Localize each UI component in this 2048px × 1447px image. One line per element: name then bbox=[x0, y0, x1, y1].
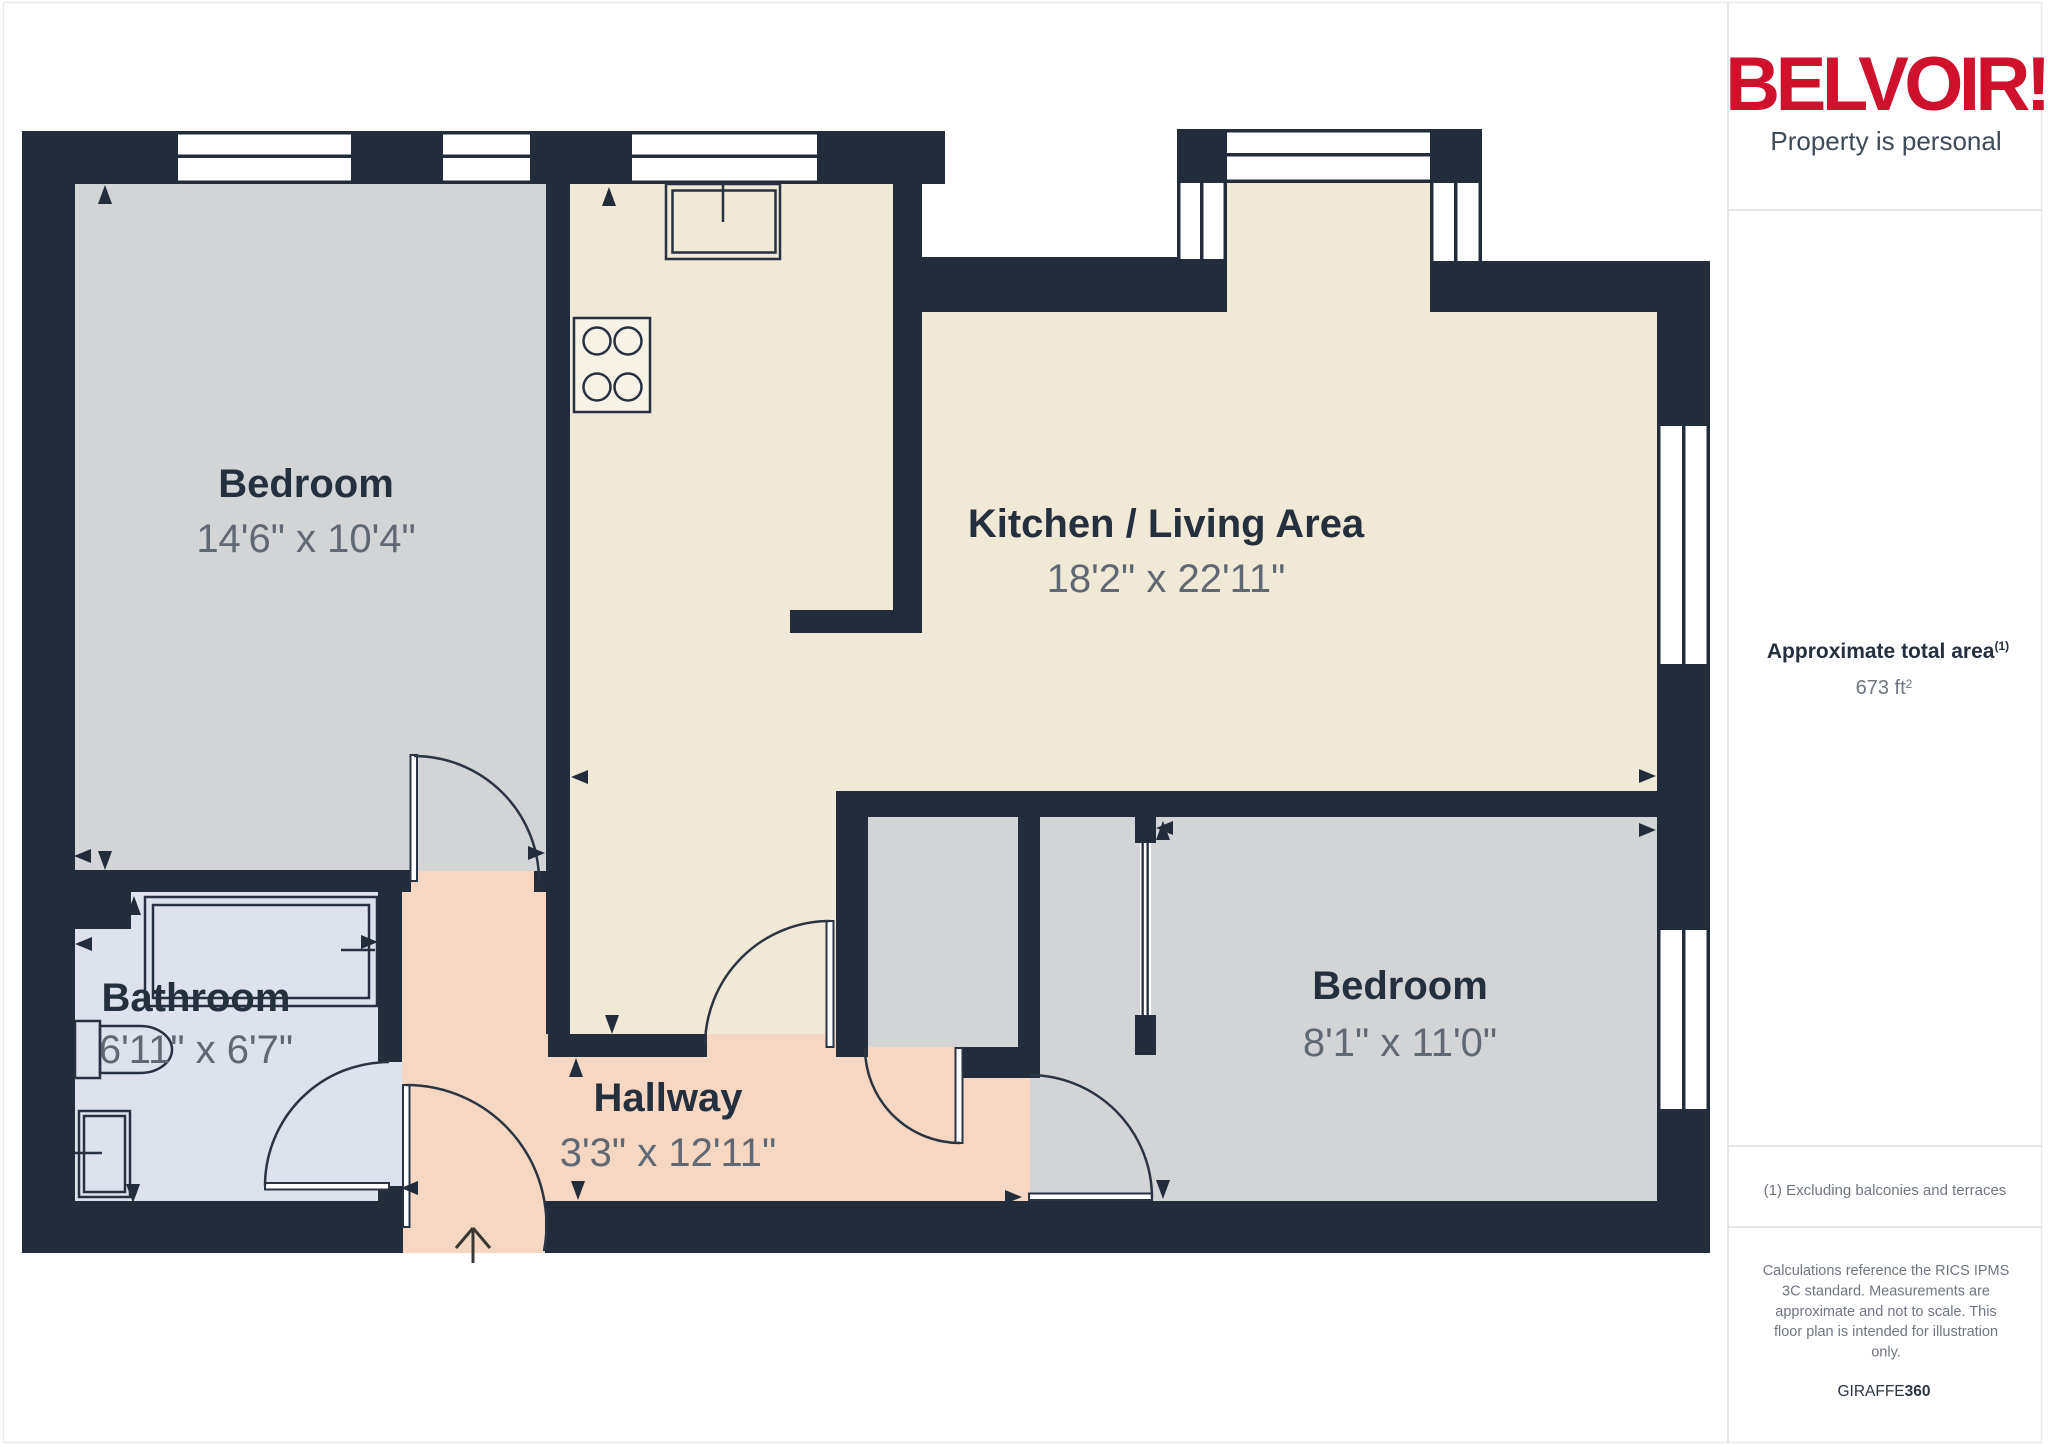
svg-text:Bedroom: Bedroom bbox=[1312, 964, 1488, 1008]
svg-text:6'11" x 6'7": 6'11" x 6'7" bbox=[99, 1028, 293, 1072]
svg-text:Bedroom: Bedroom bbox=[218, 462, 394, 506]
svg-text:3C standard. Measurements are: 3C standard. Measurements are bbox=[1782, 1283, 1990, 1299]
svg-text:18'2" x 22'11": 18'2" x 22'11" bbox=[1047, 557, 1286, 601]
svg-text:14'6" x 10'4": 14'6" x 10'4" bbox=[196, 517, 415, 561]
svg-text:3'3" x 12'11": 3'3" x 12'11" bbox=[560, 1131, 776, 1175]
svg-text:approximate and not to scale.: approximate and not to scale. This bbox=[1775, 1304, 1996, 1320]
svg-text:8'1" x 11'0": 8'1" x 11'0" bbox=[1303, 1021, 1497, 1065]
svg-text:Property is personal: Property is personal bbox=[1770, 126, 2001, 156]
svg-text:Bathroom: Bathroom bbox=[102, 976, 291, 1020]
svg-text:Calculations reference the RIC: Calculations reference the RICS IPMS bbox=[1763, 1263, 2010, 1279]
svg-text:Kitchen / Living Area: Kitchen / Living Area bbox=[968, 502, 1365, 546]
svg-text:Approximate total area(1): Approximate total area(1) bbox=[1767, 639, 2009, 663]
svg-text:only.: only. bbox=[1871, 1345, 1901, 1361]
svg-text:(1) Excluding balconies and te: (1) Excluding balconies and terraces bbox=[1764, 1182, 2007, 1199]
svg-text:673 ft2: 673 ft2 bbox=[1856, 677, 1913, 699]
svg-text:Hallway: Hallway bbox=[594, 1076, 744, 1120]
svg-text:floor plan is intended for ill: floor plan is intended for illustration bbox=[1774, 1324, 1998, 1340]
svg-text:GIRAFFE360: GIRAFFE360 bbox=[1837, 1383, 1930, 1400]
svg-text:BELVOIR!: BELVOIR! bbox=[1725, 42, 2046, 127]
